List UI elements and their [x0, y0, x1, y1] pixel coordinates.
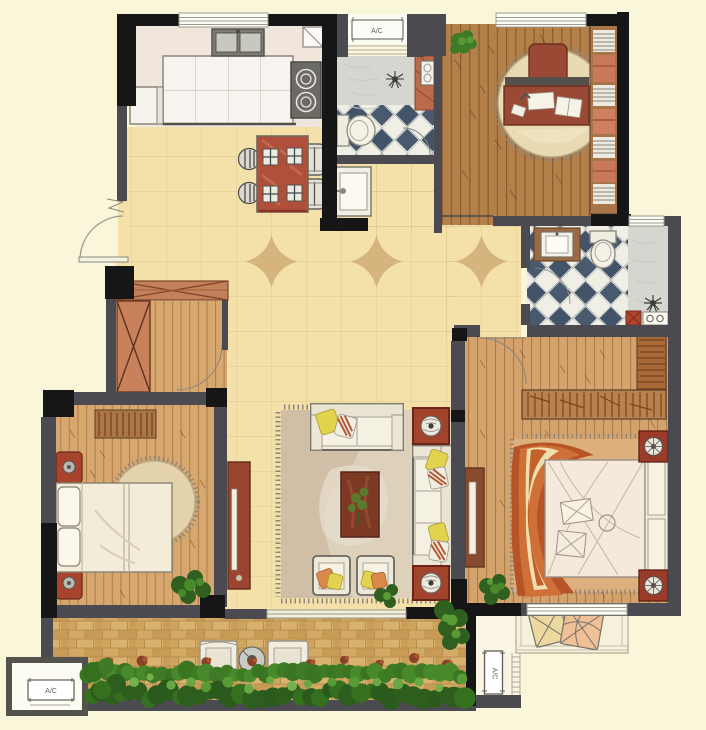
svg-text:A/C: A/C [45, 688, 57, 695]
svg-text:A/C: A/C [491, 668, 498, 680]
svg-text:A/C: A/C [371, 28, 383, 35]
